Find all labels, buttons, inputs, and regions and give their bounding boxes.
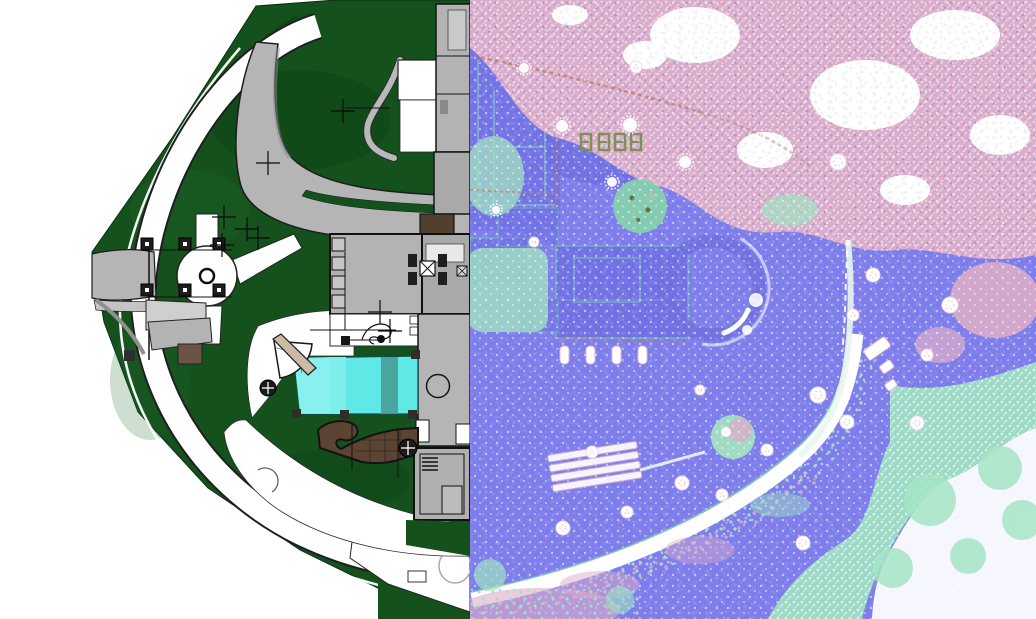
west-wing-court bbox=[398, 60, 437, 100]
north-annex-roof bbox=[434, 152, 470, 214]
roof-bay bbox=[332, 238, 345, 251]
pool-post bbox=[408, 410, 417, 419]
comparison-stage bbox=[0, 0, 1036, 619]
vestibule-pier1 bbox=[408, 254, 417, 267]
terrace-box1 bbox=[410, 316, 418, 324]
point-cloud-panel[interactable] bbox=[460, 0, 1036, 619]
colonnade-pillar bbox=[612, 346, 621, 364]
colonnade-pillar bbox=[586, 346, 595, 364]
vestibule-pier2 bbox=[408, 272, 417, 285]
vestibule-x-hatch bbox=[420, 261, 435, 276]
west-wing-court2 bbox=[400, 100, 436, 152]
tower-skylight bbox=[448, 10, 466, 50]
colonnade-pillar bbox=[638, 346, 647, 364]
site-plan-panel[interactable] bbox=[0, 0, 471, 619]
gate-post-cap bbox=[183, 288, 187, 292]
fountain-basin bbox=[200, 269, 214, 283]
scan-void bbox=[866, 268, 880, 282]
bottom-mint-tuft2 bbox=[606, 586, 634, 614]
roof-hatch-square bbox=[457, 266, 467, 276]
court-marker bbox=[408, 571, 426, 582]
gate-post-cap bbox=[145, 242, 149, 246]
scan-void bbox=[621, 506, 633, 518]
scan-void bbox=[921, 349, 933, 361]
roof-bay bbox=[332, 295, 345, 308]
pool-bridge-stripe bbox=[381, 357, 398, 414]
pool-lane-band bbox=[330, 357, 346, 414]
utility-box bbox=[124, 350, 135, 361]
point-marker bbox=[377, 335, 385, 343]
path-edge-pink2 bbox=[665, 536, 735, 564]
scan-void bbox=[630, 61, 642, 73]
terrace-box2 bbox=[410, 327, 418, 335]
scan-void bbox=[910, 416, 924, 430]
colonnade-pillar bbox=[560, 346, 569, 364]
scan-void bbox=[830, 154, 846, 170]
scan-void bbox=[716, 489, 728, 501]
vestibule-pier3 bbox=[438, 254, 447, 267]
shed-brown-roof bbox=[178, 344, 202, 364]
pool-post bbox=[411, 350, 420, 359]
scan-target bbox=[679, 156, 691, 168]
scan-void bbox=[942, 297, 958, 313]
vestibule-pier4 bbox=[438, 272, 447, 285]
pool-post bbox=[340, 410, 349, 419]
scan-void bbox=[529, 237, 539, 247]
scan-void bbox=[675, 476, 689, 490]
bench-marker bbox=[341, 336, 350, 345]
scan-void bbox=[695, 385, 705, 395]
scan-void bbox=[840, 415, 854, 429]
comparison-canvas bbox=[0, 0, 1036, 619]
scan-void bbox=[586, 446, 598, 458]
path-edge-mint bbox=[750, 493, 810, 517]
scan-target bbox=[623, 118, 637, 132]
scan-void bbox=[796, 536, 810, 550]
gate-post-cap bbox=[183, 242, 187, 246]
pavilion-room bbox=[442, 486, 462, 514]
tower-vent bbox=[440, 100, 448, 114]
scan-void bbox=[810, 387, 826, 403]
gate-post-cap bbox=[145, 288, 149, 292]
corridor-notch-east bbox=[456, 424, 470, 444]
scan-target bbox=[492, 206, 500, 214]
scan-target bbox=[519, 63, 529, 73]
scan-target bbox=[607, 177, 617, 187]
gate-post-cap bbox=[217, 288, 221, 292]
roof-bay bbox=[332, 276, 345, 289]
scan-void bbox=[556, 521, 570, 535]
scan-void bbox=[847, 309, 859, 321]
pool-post bbox=[292, 409, 301, 418]
roof-bay bbox=[332, 257, 345, 270]
bottom-mint-tuft1 bbox=[474, 559, 506, 591]
scan-target bbox=[556, 120, 568, 132]
scan-void bbox=[761, 444, 773, 456]
